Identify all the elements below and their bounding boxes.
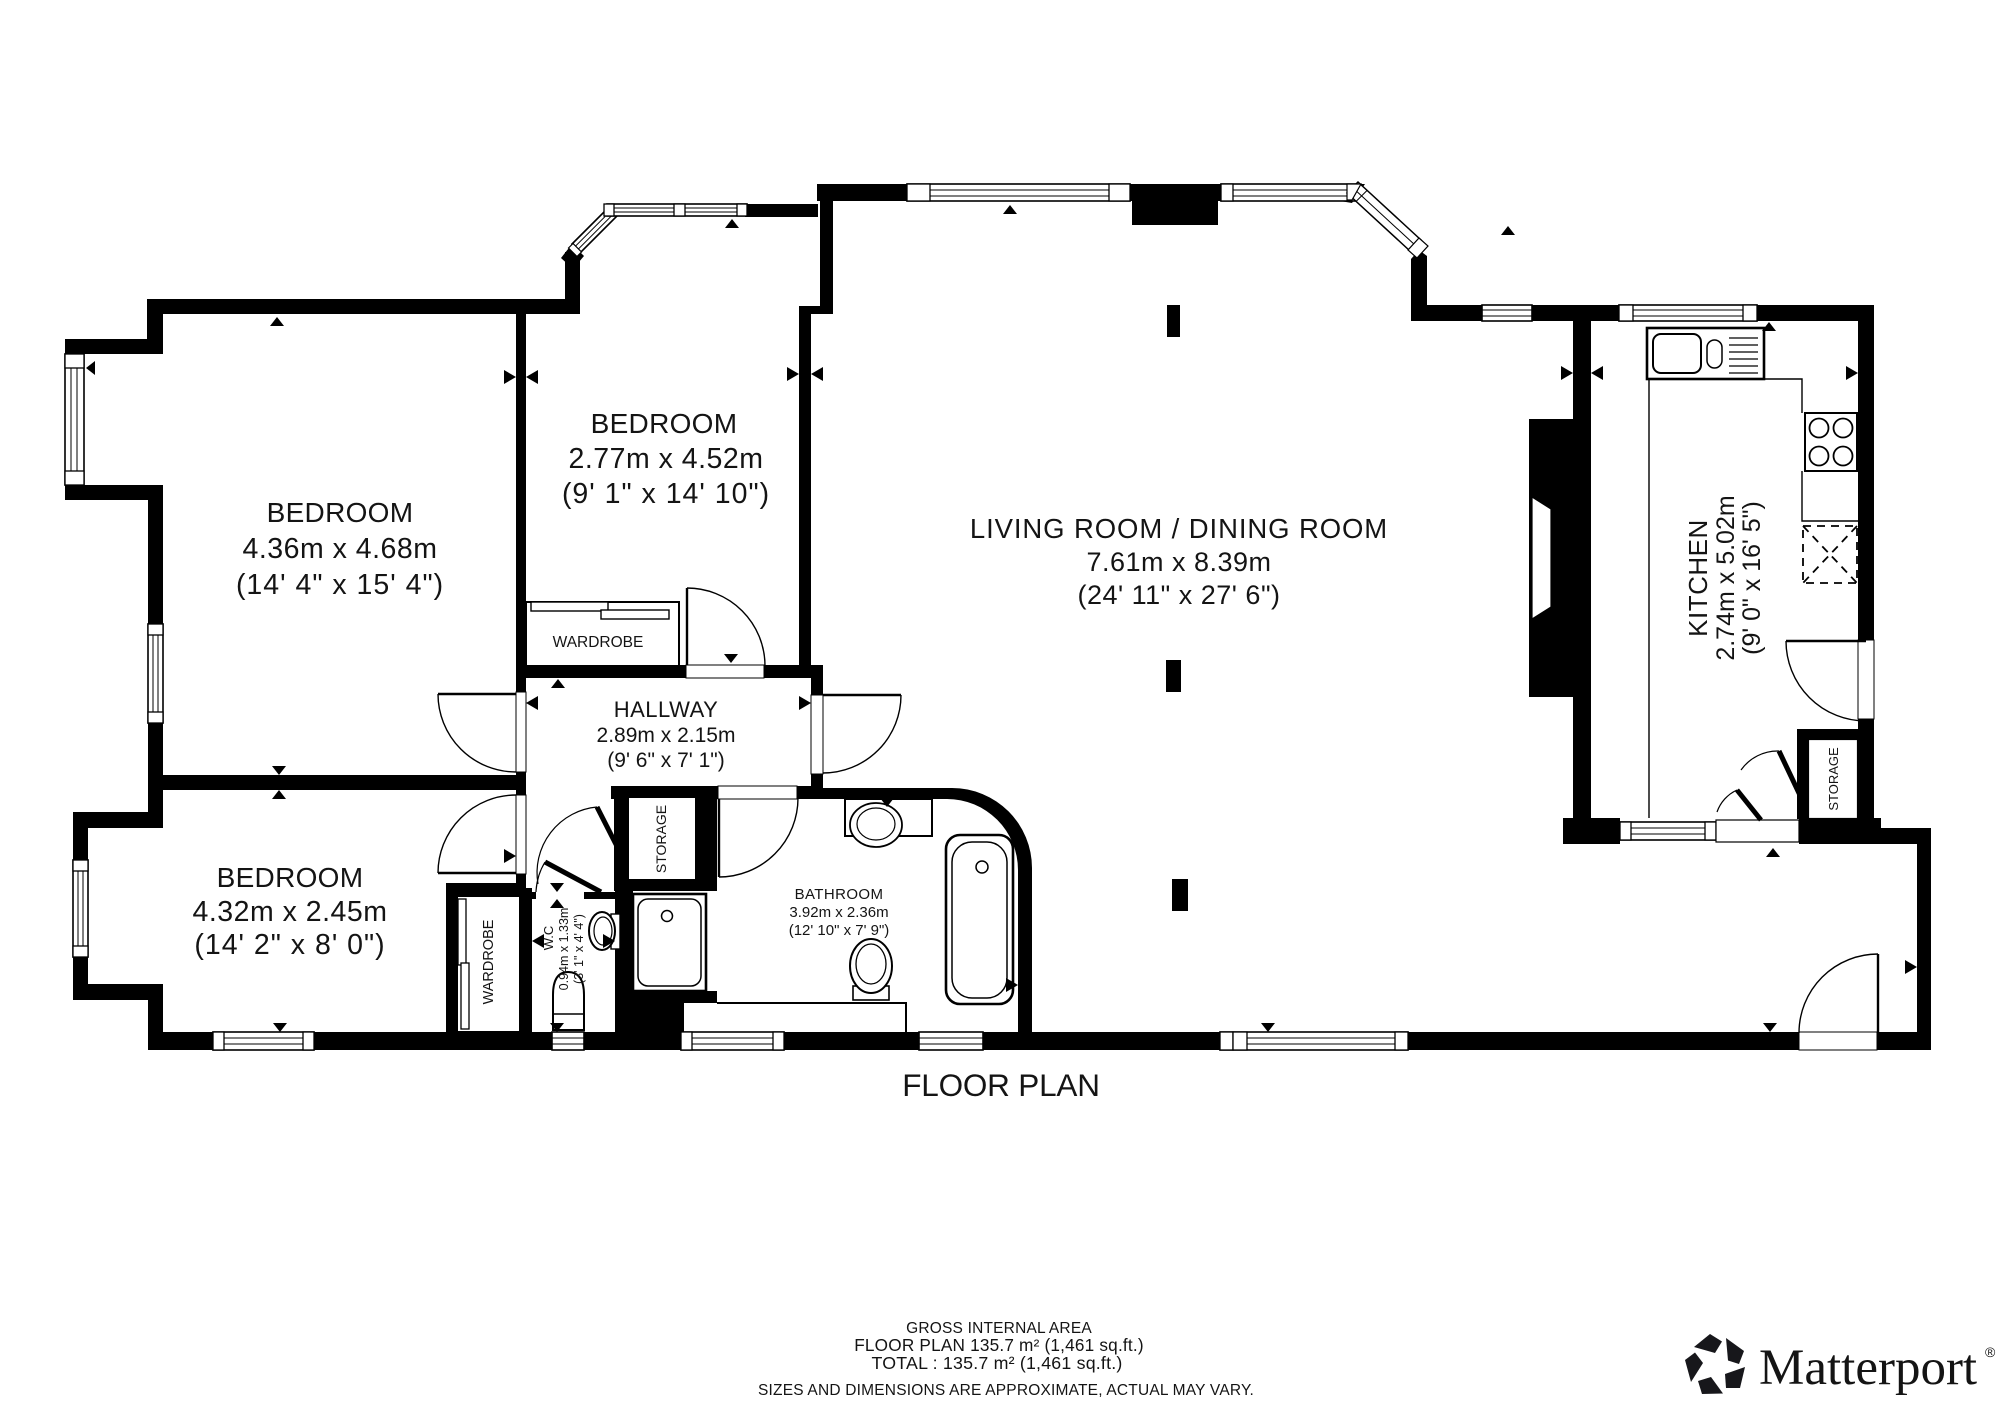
- svg-text:(9' 0" x 16' 5"): (9' 0" x 16' 5"): [1738, 501, 1766, 655]
- svg-text:BATHROOM: BATHROOM: [795, 886, 884, 903]
- svg-text:TOTAL : 135.7 m² (1,461 sq.ft: TOTAL : 135.7 m² (1,461 sq.ft.): [872, 1353, 1123, 1373]
- svg-text:BEDROOM: BEDROOM: [591, 408, 738, 439]
- svg-text:(3' 1" x 4' 4"): (3' 1" x 4' 4"): [572, 914, 586, 984]
- svg-text:BEDROOM: BEDROOM: [217, 862, 364, 893]
- svg-text:2.89m x 2.15m: 2.89m x 2.15m: [597, 724, 736, 747]
- svg-text:(9' 1" x 14' 10"): (9' 1" x 14' 10"): [562, 478, 770, 510]
- svg-text:2.74m x 5.02m: 2.74m x 5.02m: [1712, 495, 1740, 660]
- svg-text:7.61m x 8.39m: 7.61m x 8.39m: [1086, 547, 1271, 577]
- svg-text:3.92m x 2.36m: 3.92m x 2.36m: [789, 904, 888, 921]
- svg-text:W.C: W.C: [541, 926, 556, 951]
- svg-text:FLOOR PLAN: FLOOR PLAN: [902, 1067, 1100, 1103]
- svg-text:FLOOR PLAN 135.7 m² (1,461 sq.: FLOOR PLAN 135.7 m² (1,461 sq.ft.): [854, 1335, 1144, 1355]
- svg-text:LIVING ROOM / DINING ROOM: LIVING ROOM / DINING ROOM: [970, 513, 1388, 544]
- svg-text:Matterport: Matterport: [1759, 1340, 1977, 1396]
- svg-text:(12' 10" x 7' 9"): (12' 10" x 7' 9"): [789, 922, 890, 939]
- svg-text:WARDROBE: WARDROBE: [481, 919, 497, 1004]
- svg-text:(14' 2" x 8' 0"): (14' 2" x 8' 0"): [194, 929, 385, 961]
- svg-text:SIZES AND DIMENSIONS ARE APPRO: SIZES AND DIMENSIONS ARE APPROXIMATE, AC…: [758, 1382, 1254, 1399]
- svg-text:4.32m x 2.45m: 4.32m x 2.45m: [192, 896, 387, 928]
- svg-text:(9' 6" x 7' 1"): (9' 6" x 7' 1"): [607, 749, 724, 772]
- svg-text:(14' 4" x 15' 4"): (14' 4" x 15' 4"): [236, 569, 444, 601]
- svg-text:WARDROBE: WARDROBE: [553, 634, 644, 651]
- svg-text:HALLWAY: HALLWAY: [614, 697, 719, 722]
- svg-text:(24' 11" x 27' 6"): (24' 11" x 27' 6"): [1077, 580, 1280, 610]
- svg-text:2.77m x 4.52m: 2.77m x 4.52m: [568, 443, 763, 475]
- svg-text:STORAGE: STORAGE: [1826, 747, 1841, 811]
- svg-text:KITCHEN: KITCHEN: [1683, 519, 1713, 637]
- svg-text:STORAGE: STORAGE: [653, 805, 669, 873]
- svg-text:4.36m x 4.68m: 4.36m x 4.68m: [242, 533, 437, 565]
- svg-text:BEDROOM: BEDROOM: [267, 497, 414, 528]
- svg-text:®: ®: [1985, 1344, 1996, 1360]
- svg-text:0.94m x 1.33m: 0.94m x 1.33m: [557, 908, 571, 991]
